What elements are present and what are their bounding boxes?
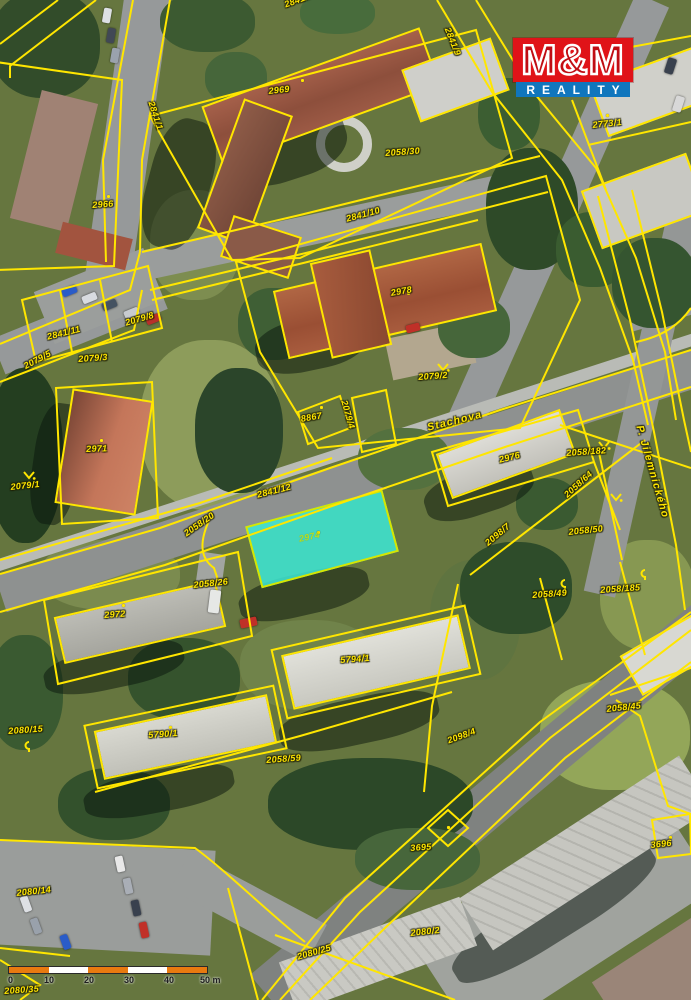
cadastral-lines [0, 0, 691, 1000]
scale-segment [167, 967, 207, 973]
scale-segment [9, 967, 49, 973]
agency-logo: M&M REALITY [513, 38, 633, 97]
logo-mark: M&M [513, 38, 633, 82]
scale-bar-segments [8, 966, 208, 974]
logo-text: M&M [521, 39, 624, 81]
scale-segment [128, 967, 168, 973]
scale-tick-label: 20 [84, 975, 94, 985]
scale-tick-label: 0 [8, 975, 13, 985]
scale-segment [88, 967, 128, 973]
map-scale-bar: 01020304050 m [8, 966, 212, 987]
scale-tick-label: 30 [124, 975, 134, 985]
scale-bar-ticks: 01020304050 m [8, 975, 212, 987]
scale-tick-label: 50 m [200, 975, 221, 985]
logo-subtext: REALITY [519, 83, 626, 97]
scale-tick-label: 10 [44, 975, 54, 985]
scale-tick-label: 40 [164, 975, 174, 985]
logo-banner: REALITY [516, 82, 630, 97]
aerial-cadastral-map: 2841/92841/929692058/302773/12841/129662… [0, 0, 691, 1000]
scale-segment [49, 967, 89, 973]
